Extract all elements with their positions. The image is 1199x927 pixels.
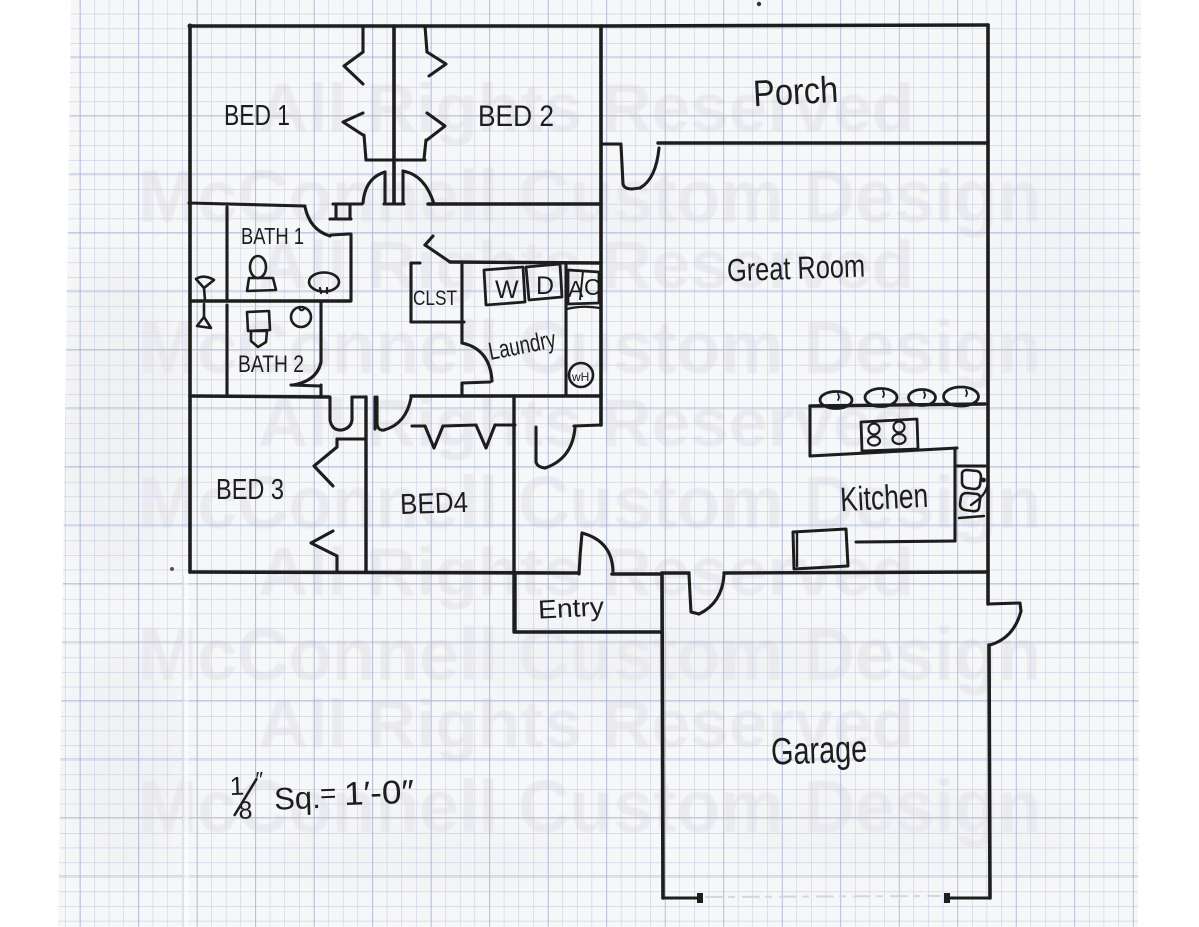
- svg-text:BED 1: BED 1: [224, 100, 290, 132]
- svg-text:″: ″: [255, 767, 264, 792]
- svg-text:wH: wH: [571, 370, 589, 384]
- svg-text:Sq.: Sq.: [274, 780, 322, 817]
- svg-text:D: D: [536, 272, 554, 300]
- svg-text:Great Room: Great Room: [726, 248, 865, 289]
- svg-text:Porch: Porch: [752, 69, 839, 114]
- svg-text:BATH 2: BATH 2: [238, 351, 304, 378]
- svg-text:BATH 1: BATH 1: [241, 223, 304, 249]
- svg-text:Entry: Entry: [537, 591, 604, 624]
- svg-text:8: 8: [238, 796, 253, 824]
- svg-text:CLST: CLST: [413, 287, 457, 310]
- svg-text:=: =: [319, 777, 336, 809]
- svg-text:BED 3: BED 3: [216, 474, 284, 506]
- svg-text:1′-0″: 1′-0″: [343, 773, 415, 812]
- svg-text:W: W: [495, 276, 519, 304]
- svg-text:C: C: [584, 274, 601, 300]
- svg-text:Garage: Garage: [770, 728, 867, 773]
- svg-text:BED 2: BED 2: [478, 100, 554, 133]
- svg-text:BED4: BED4: [399, 487, 468, 521]
- svg-text:Kitchen: Kitchen: [839, 477, 929, 520]
